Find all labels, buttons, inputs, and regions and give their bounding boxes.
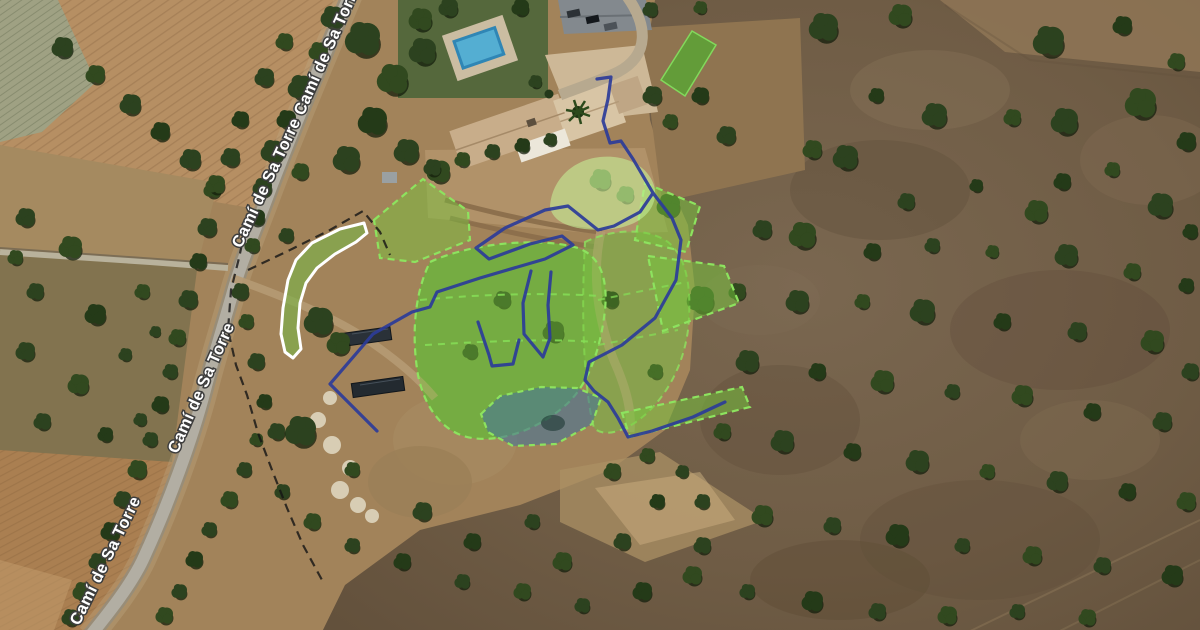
map-canvas[interactable]: Camí de Sa Torre Camí de Sa Torre Camí d…	[0, 0, 1200, 630]
pond-dark-spot	[541, 415, 565, 431]
